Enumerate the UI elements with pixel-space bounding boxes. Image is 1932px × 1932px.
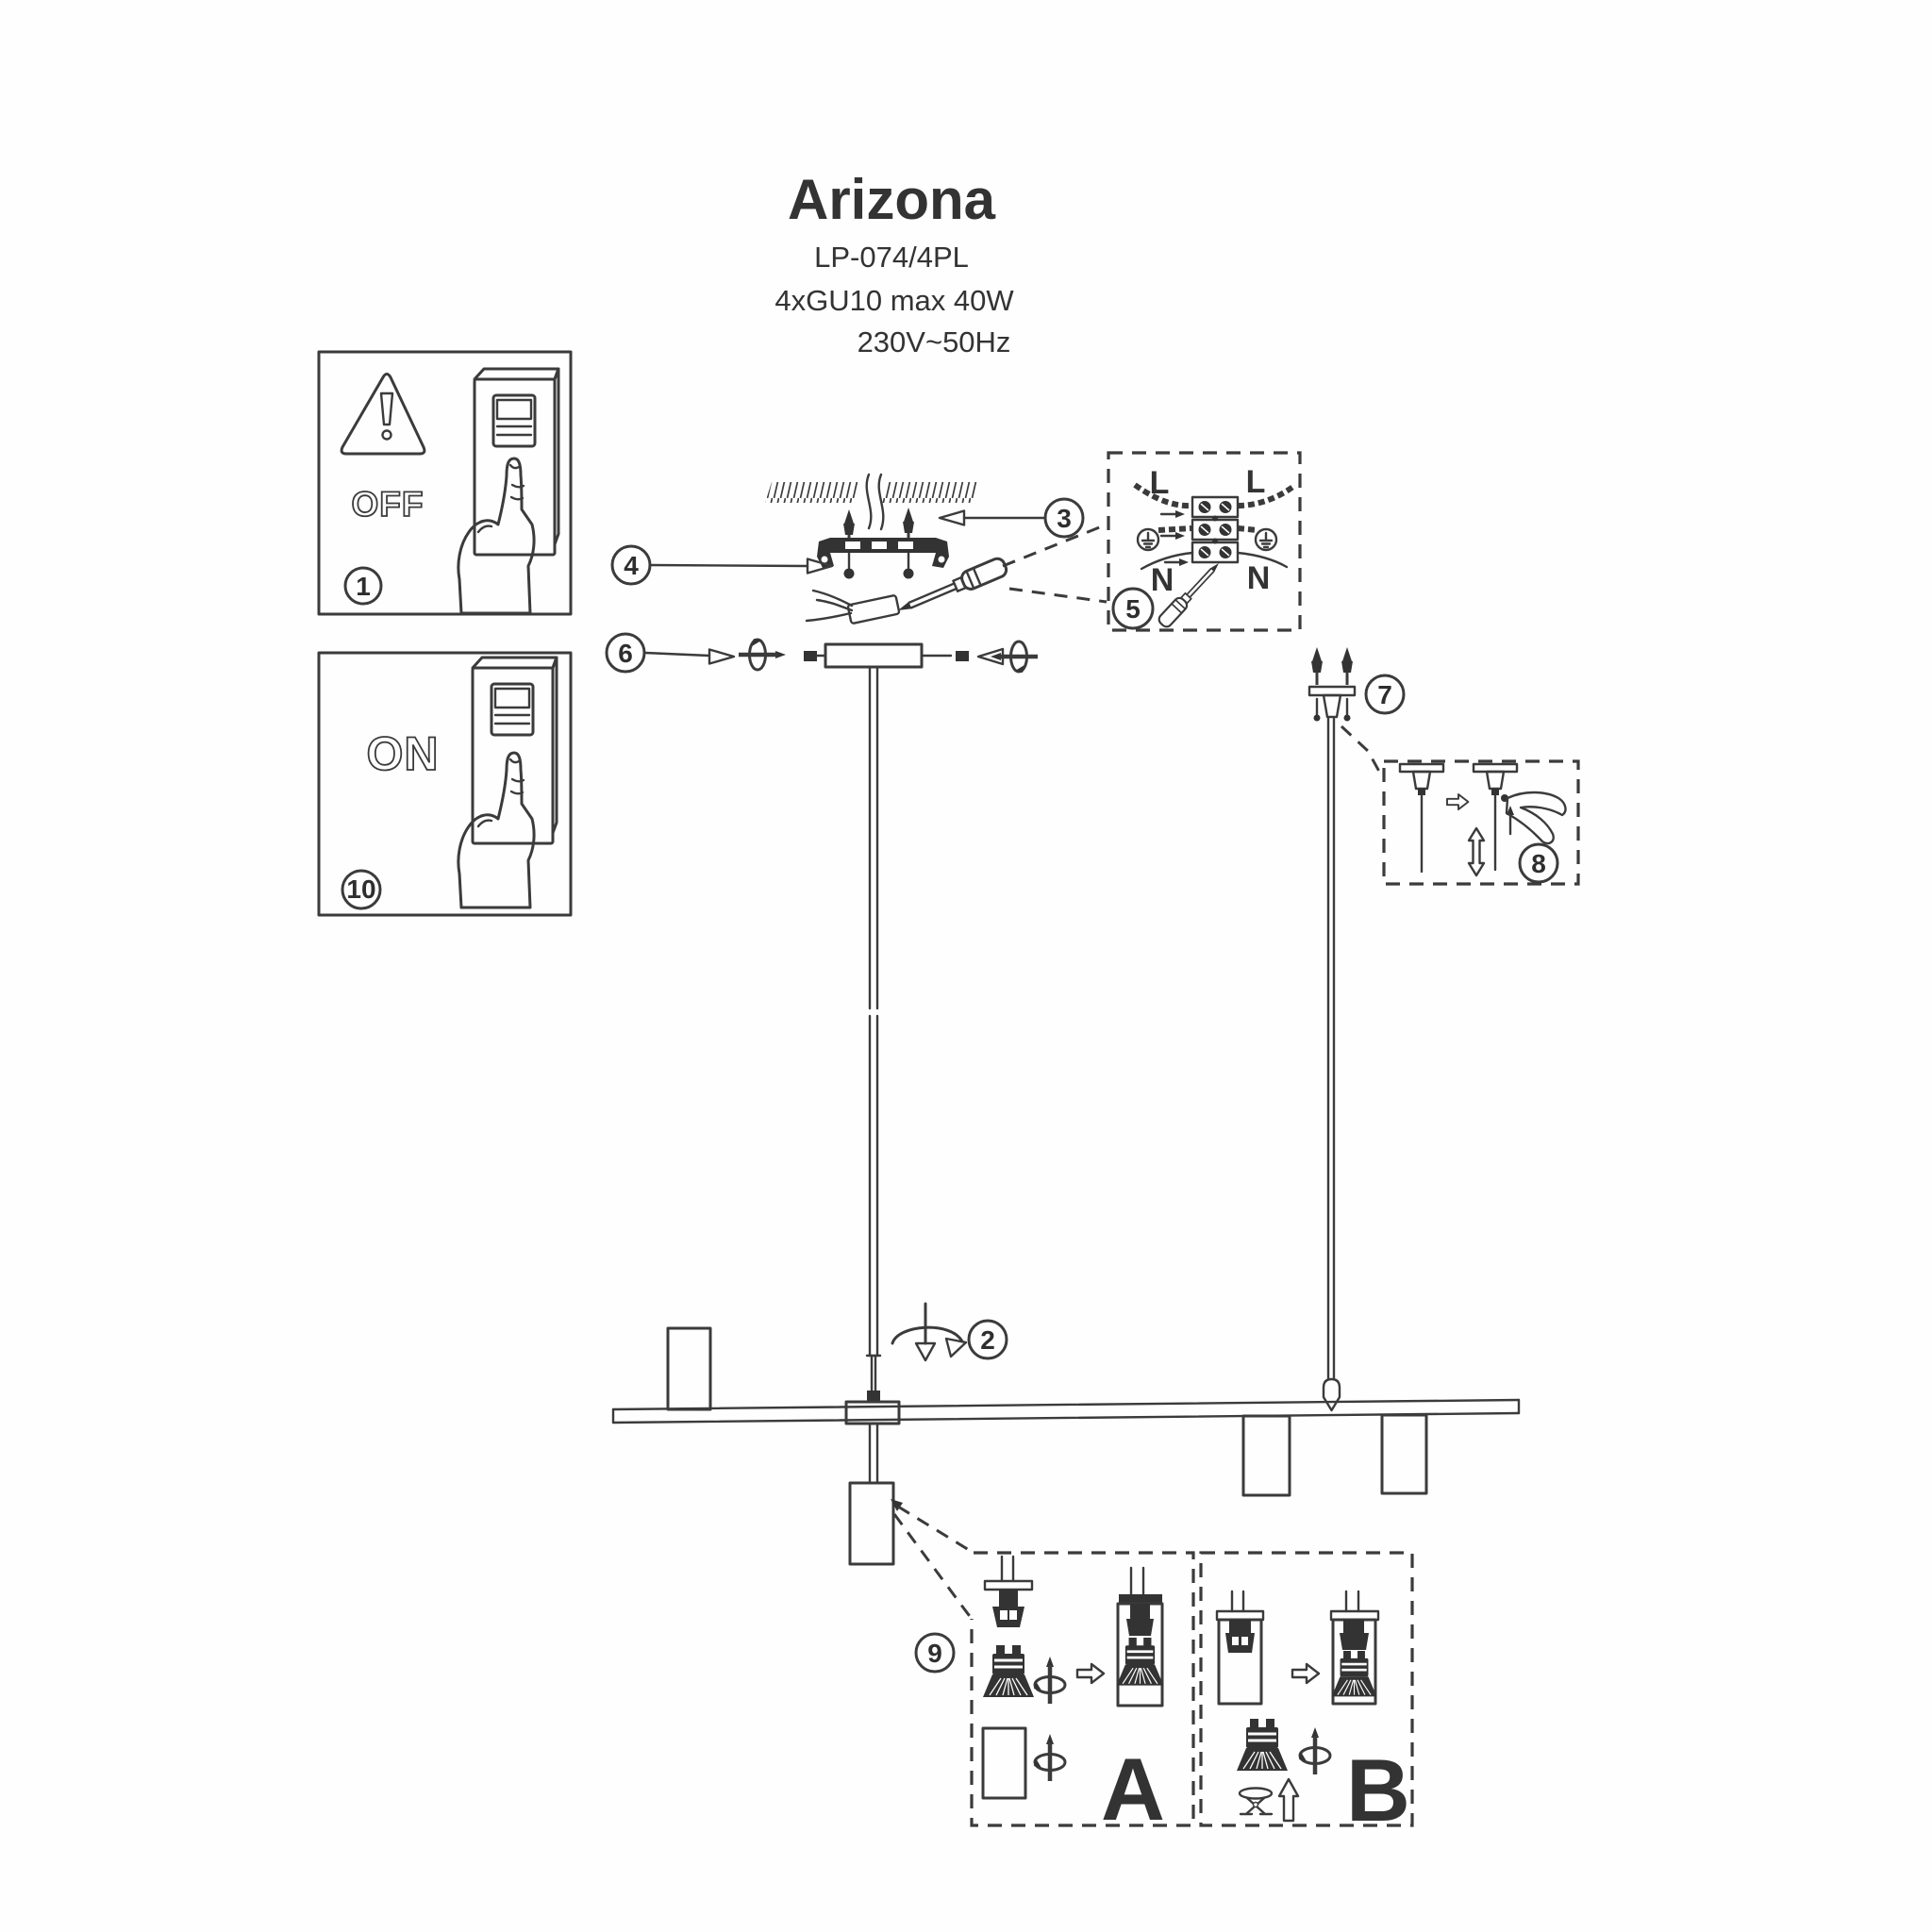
off-label: OFF xyxy=(352,485,425,524)
rod-coupler xyxy=(867,1391,880,1402)
cable-adjust-box: 8 xyxy=(1384,761,1578,884)
trim-ring xyxy=(1240,1789,1272,1815)
mains-wire xyxy=(867,475,872,528)
then-arrow xyxy=(1447,794,1468,809)
canopy xyxy=(825,644,922,667)
ceiling-hatch-right xyxy=(879,482,979,503)
up-down-arrow xyxy=(1469,828,1484,875)
center-rod xyxy=(867,667,880,1402)
step-3-callout: 3 xyxy=(940,499,1083,537)
svg-text:5: 5 xyxy=(1125,594,1141,624)
screwdriver xyxy=(894,557,1008,619)
neutral-label-right: N xyxy=(1247,560,1271,596)
lamp-head-down-1 xyxy=(1243,1416,1290,1495)
step-6-callout: 6 xyxy=(607,634,734,672)
assembled-pendant xyxy=(1117,1568,1164,1706)
callout-dash xyxy=(1009,589,1107,602)
wiring-detail-box: L L N N xyxy=(1108,453,1300,630)
step-2-badge: 2 xyxy=(969,1321,1007,1358)
socket-grip-glyph xyxy=(985,1557,1032,1627)
bulb-install: 9 xyxy=(891,1499,1412,1840)
neutral-label-left: N xyxy=(1151,562,1174,598)
instruction-sheet: Arizona LP-074/4PL 4xGU10 max 40W 230V~5… xyxy=(0,0,1932,1932)
rotate-symbol xyxy=(1034,1657,1065,1704)
power-off-panel: OFF 1 xyxy=(319,352,571,614)
svg-text:3: 3 xyxy=(1057,504,1072,533)
svg-text:2: 2 xyxy=(980,1325,995,1355)
then-arrow xyxy=(1292,1664,1319,1683)
screw-seat-right xyxy=(956,651,969,661)
lamp-head-up-left xyxy=(668,1328,710,1409)
ground-symbol-left xyxy=(1138,529,1158,550)
screw-seat-left xyxy=(804,651,817,661)
fixture-bar xyxy=(613,1328,1519,1564)
step-9-badge: 9 xyxy=(916,1634,954,1672)
pressing-hand xyxy=(458,753,534,908)
cable-flange xyxy=(1309,687,1355,695)
variant-a-box: A xyxy=(972,1553,1193,1839)
svg-text:6: 6 xyxy=(618,639,633,668)
rotate-symbol xyxy=(1034,1734,1065,1781)
pressing-hand xyxy=(458,458,534,613)
rotate-symbol xyxy=(1299,1727,1330,1774)
variant-b-box: B xyxy=(1201,1553,1412,1840)
assembly-diagram: Arizona LP-074/4PL 4xGU10 max 40W 230V~5… xyxy=(0,0,1932,1932)
step-10-badge: 10 xyxy=(342,871,380,908)
power-spec: 230V~50Hz xyxy=(858,325,1011,358)
header: Arizona LP-074/4PL 4xGU10 max 40W 230V~5… xyxy=(774,168,1014,358)
gu10-bulb xyxy=(983,1645,1034,1697)
push-up-arrow xyxy=(1279,1779,1298,1821)
step-7-badge: 7 xyxy=(1366,675,1404,713)
svg-text:1: 1 xyxy=(356,572,371,601)
variant-b-label: B xyxy=(1346,1740,1410,1840)
svg-text:9: 9 xyxy=(927,1639,942,1668)
pinching-hand xyxy=(1507,792,1565,843)
model-number: LP-074/4PL xyxy=(814,241,969,274)
step-4-callout: 4 xyxy=(612,546,832,584)
svg-text:7: 7 xyxy=(1377,680,1392,709)
page-title: Arizona xyxy=(788,168,996,231)
lamp-head-down-2 xyxy=(1382,1415,1426,1493)
step-8-badge: 8 xyxy=(1520,844,1557,882)
svg-text:8: 8 xyxy=(1531,849,1546,878)
cable-bar-grip xyxy=(1324,1379,1340,1410)
ground-symbol-right xyxy=(1256,529,1276,550)
mounting-bracket xyxy=(817,538,949,568)
cable-plug-right xyxy=(1341,647,1353,685)
power-on-panel: ON 10 xyxy=(319,653,571,915)
step-5-badge: 5 xyxy=(1113,589,1153,628)
warning-icon xyxy=(341,375,425,455)
canopy-assembly: 6 xyxy=(607,634,1038,673)
step-2-rotate: 2 xyxy=(892,1304,1007,1360)
assembled-pendant xyxy=(1331,1591,1378,1704)
callout-dash xyxy=(1003,525,1107,566)
shade-with-socket xyxy=(1217,1591,1263,1704)
lamp-spec: 4xGU10 max 40W xyxy=(774,284,1014,317)
ceiling-hatch-left xyxy=(765,482,860,503)
ceiling-mounting: 3 4 xyxy=(612,475,1107,624)
side-screw-left xyxy=(739,639,786,670)
then-arrow xyxy=(1077,1664,1104,1683)
grip-after xyxy=(1474,764,1517,795)
svg-text:10: 10 xyxy=(346,874,375,904)
lamp-head-center xyxy=(850,1483,893,1564)
side-screw-right xyxy=(991,641,1038,673)
cable-plug-left xyxy=(1311,647,1323,685)
wire-connector xyxy=(807,591,900,624)
svg-text:4: 4 xyxy=(624,551,639,580)
on-label: ON xyxy=(367,727,440,780)
live-label-left: L xyxy=(1150,465,1170,501)
variant-a-label: A xyxy=(1101,1740,1165,1839)
live-label-right: L xyxy=(1246,464,1266,500)
gu10-bulb xyxy=(1237,1719,1288,1771)
callout-dash xyxy=(1341,726,1383,778)
grip-before xyxy=(1400,764,1443,795)
empty-shade xyxy=(983,1728,1025,1798)
terminal-block xyxy=(1192,497,1238,562)
step-1-badge: 1 xyxy=(345,568,381,604)
